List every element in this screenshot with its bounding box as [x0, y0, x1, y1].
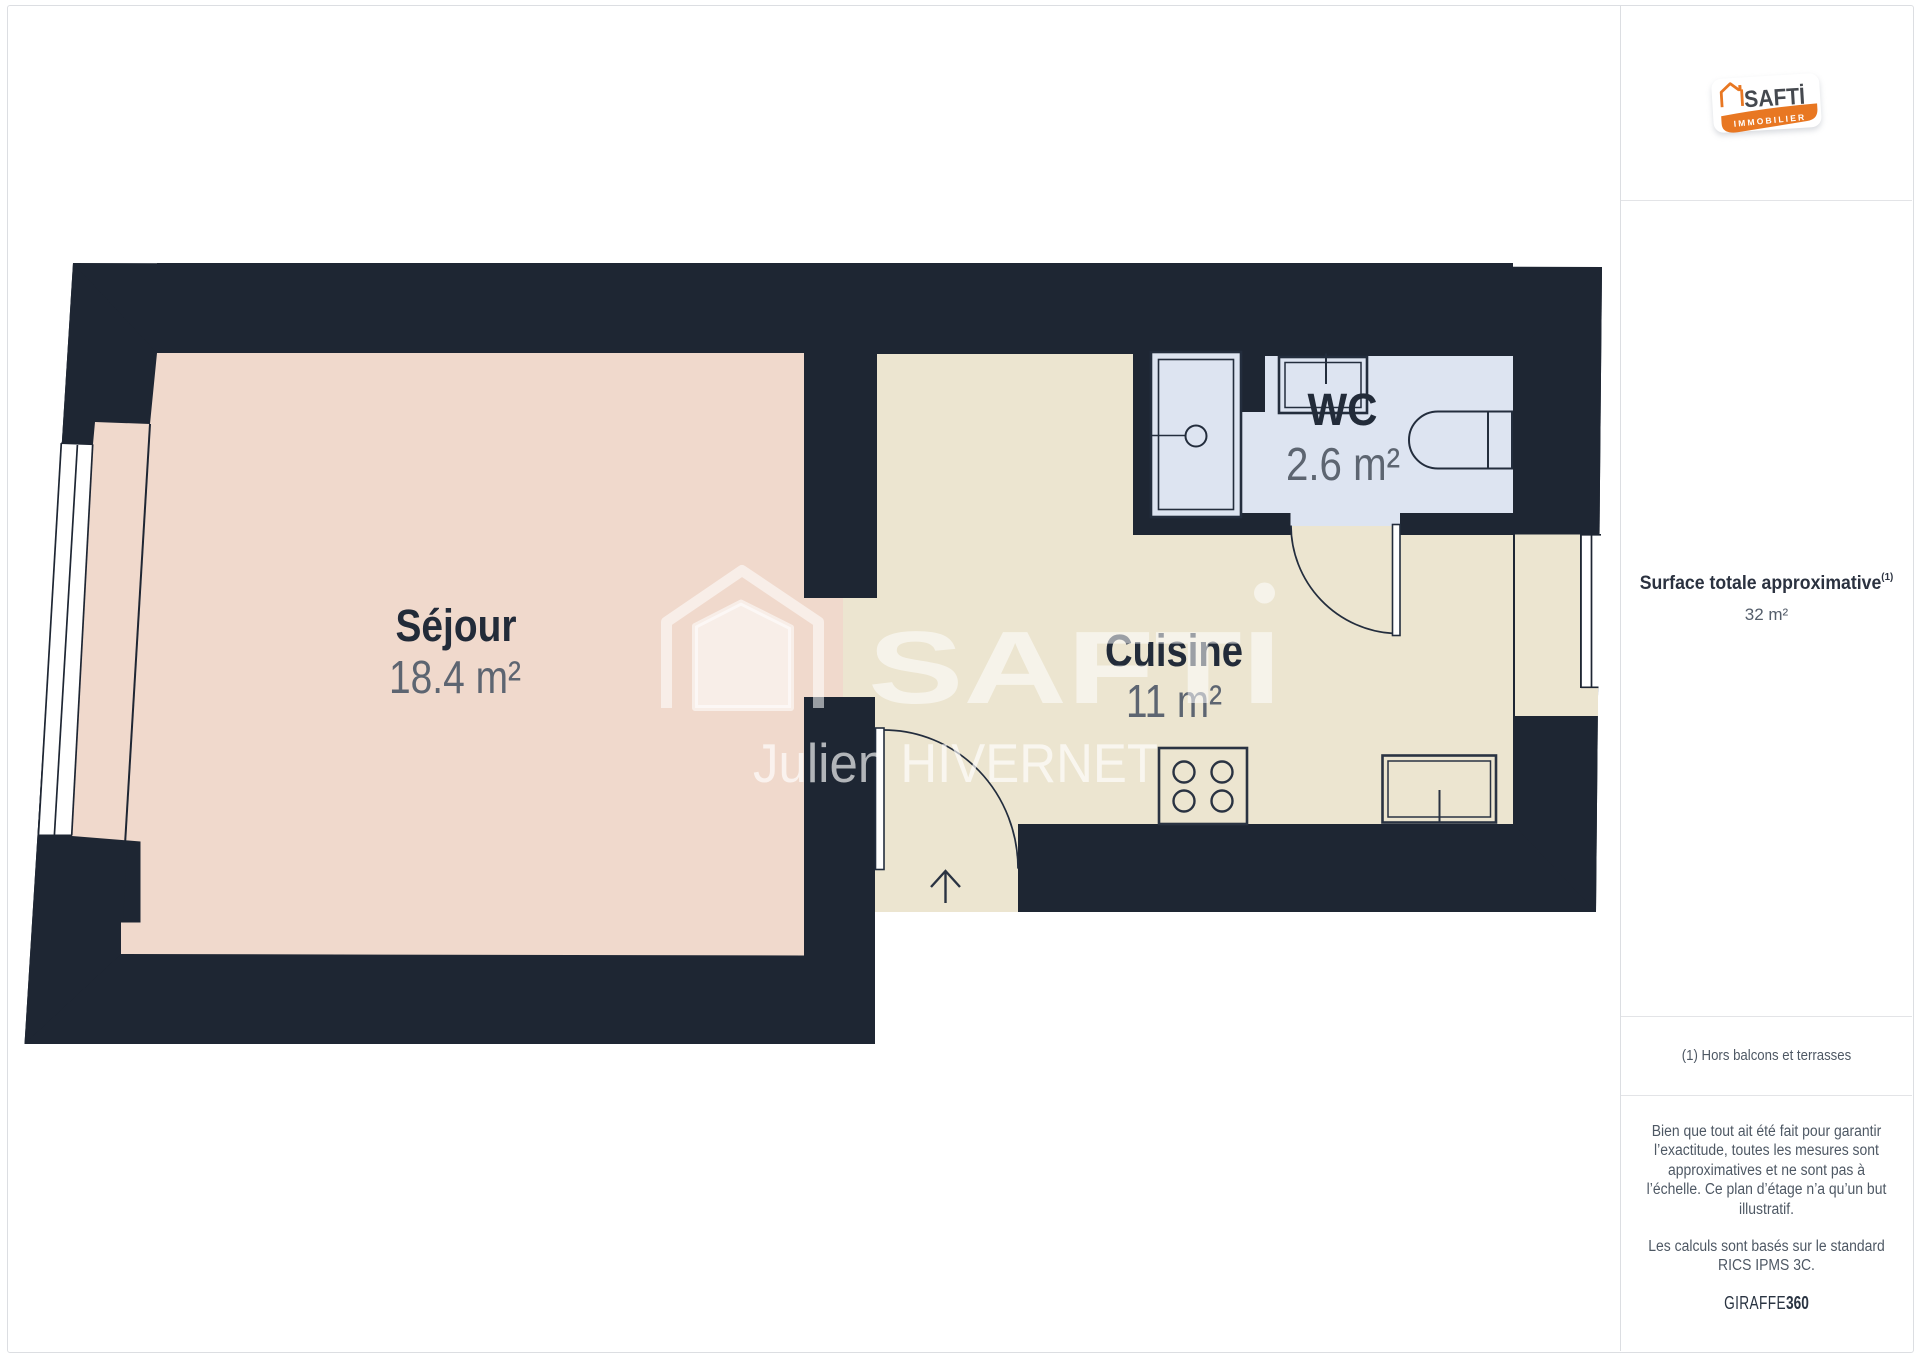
- svg-text:WC: WC: [1308, 384, 1378, 435]
- svg-text:Séjour: Séjour: [396, 600, 517, 651]
- svg-text:SAFTI: SAFTI: [868, 610, 1282, 725]
- svg-text:SAFTİ: SAFTİ: [1743, 83, 1805, 113]
- svg-text:18.4 m²: 18.4 m²: [389, 651, 521, 703]
- svg-text:Julien HIVERNET: Julien HIVERNET: [753, 732, 1158, 794]
- svg-text:2.6 m²: 2.6 m²: [1286, 438, 1400, 490]
